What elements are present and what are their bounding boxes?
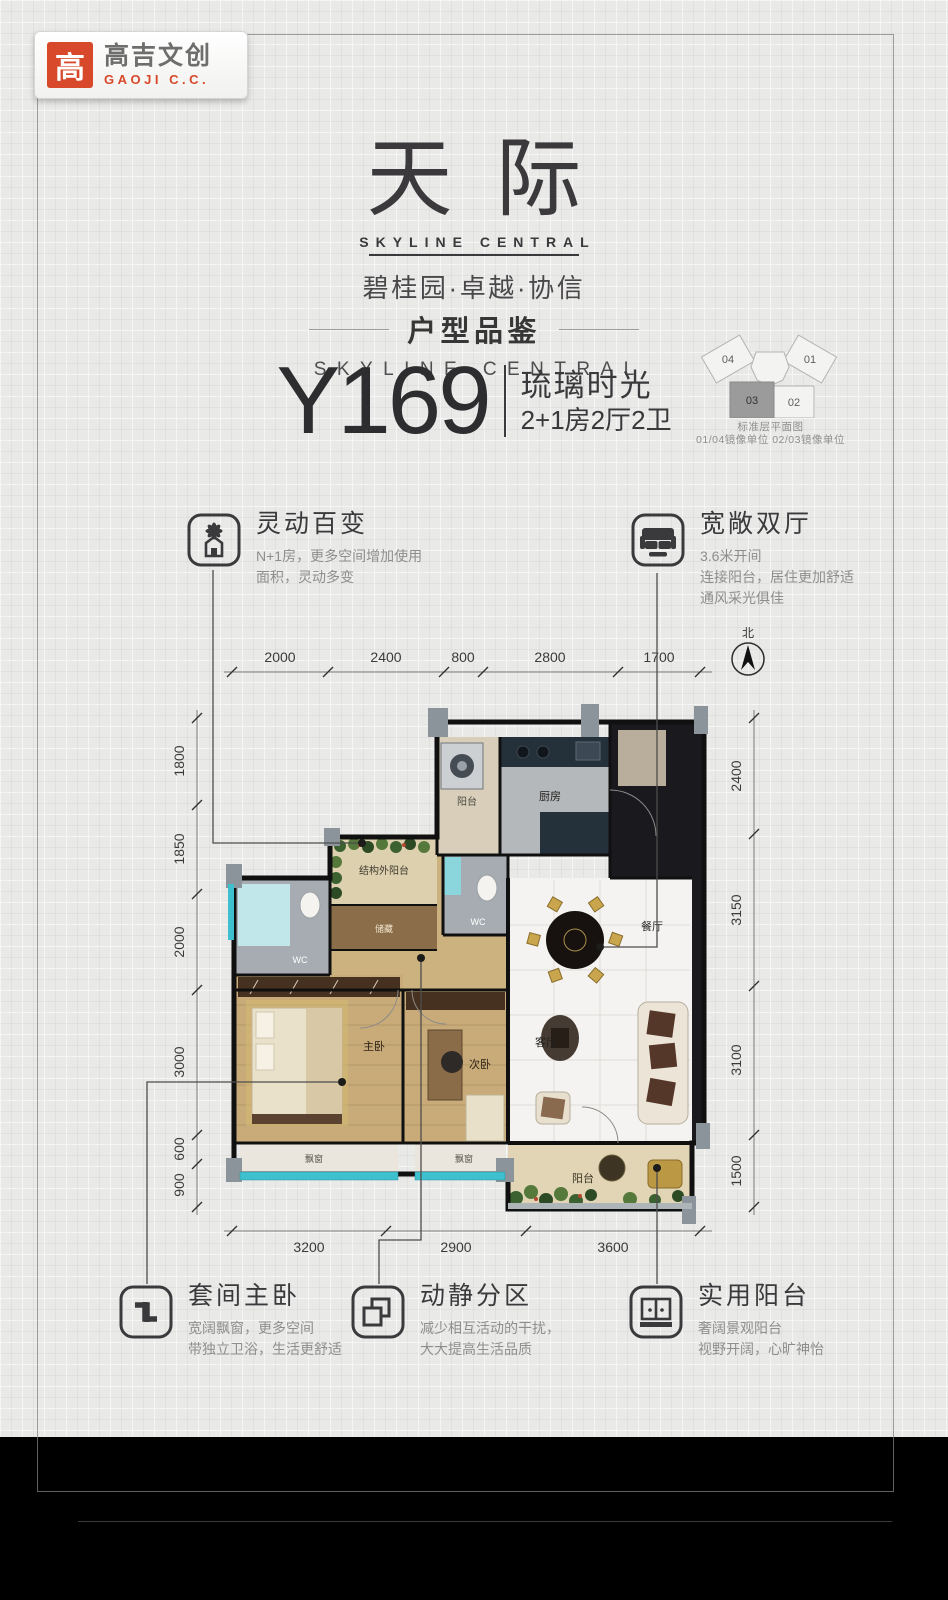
feature-desc: 奢阔景观阳台 视野开阔，心旷神怡: [698, 1318, 824, 1360]
wardrobe-master: [238, 977, 400, 997]
heading-dash-right: [559, 329, 639, 330]
keyplan-label-04: 04: [722, 354, 734, 366]
overlap-squares-icon: [350, 1284, 406, 1340]
dim-top-4: 2800: [534, 649, 565, 665]
section-heading: 户型品鉴: [407, 308, 540, 350]
stove-burner: [517, 746, 529, 758]
dim-left-4: 3000: [171, 1046, 187, 1077]
second-bed: [466, 1095, 504, 1141]
feature-zone-separation: 动静分区 减少相互活动的干扰， 大大提高生活品质: [350, 1284, 560, 1360]
dim-left-3: 2000: [171, 926, 187, 957]
heading-dash-left: [309, 329, 389, 330]
dim-bottom-1: 3200: [293, 1239, 324, 1255]
dim-right-1: 2400: [728, 760, 744, 791]
sofa-icon: [630, 512, 686, 568]
compass-needle-icon: [741, 645, 755, 670]
room-label-second-bedroom: 次卧: [469, 1057, 491, 1071]
toilet-master: [300, 892, 320, 918]
unit-code: Y169: [276, 362, 488, 441]
feature-text: 动静分区 减少相互活动的干扰， 大大提高生活品质: [420, 1284, 560, 1360]
room-label-wc-kitchen: WC: [471, 917, 486, 927]
floor-plan: 阳台 厨房 WC 餐厅 结构外阳台 储藏 WC 主卧 次卧 客厅 飘窗 飘窗 阳…: [150, 608, 800, 1270]
room-label-bay-window-master: 飘窗: [305, 1153, 323, 1164]
feature-double-hall: 宽敞双厅 3.6米开间 连接阳台，居住更加舒适 通风采光俱佳: [630, 512, 854, 609]
dim-top-2: 2400: [370, 649, 401, 665]
keyplan-core: [751, 352, 789, 386]
feature-title: 宽敞双厅: [700, 512, 854, 537]
developer-brands: 碧桂园·卓越·协信: [0, 268, 948, 305]
feature-flexible-space: 灵动百变 N+1房，更多空间增加使用 面积，灵动多变: [186, 512, 422, 588]
logo-mark-icon: 高: [47, 42, 93, 88]
room-label-kitchen: 厨房: [539, 790, 561, 803]
poster-page: 高 高吉文创 GAOJI C.C. 天际 SKYLINE CENTRAL 碧桂园…: [0, 0, 948, 1600]
room-label-wc-master: WC: [293, 955, 308, 965]
room-label-dining: 餐厅: [641, 919, 663, 933]
pinwheel-arrows-icon: [118, 1284, 174, 1340]
dim-right-3: 3100: [728, 1044, 744, 1075]
room-label-storage: 储藏: [375, 923, 393, 934]
balcony-table: [599, 1155, 625, 1181]
feature-text: 套间主卧 宽阔飘窗，更多空间 带独立卫浴，生活更舒适: [188, 1284, 342, 1360]
dim-top-1: 2000: [264, 649, 295, 665]
keyplan-label-02: 02: [788, 397, 800, 409]
logo-card: 高 高吉文创 GAOJI C.C.: [34, 31, 248, 99]
dim-bottom-3: 3600: [597, 1239, 628, 1255]
room-label-utility-balcony: 阳台: [457, 795, 477, 808]
balcony-window-icon: [628, 1284, 684, 1340]
feature-title: 套间主卧: [188, 1284, 342, 1309]
unit-text-col: 琉璃时光 2+1房2厅2卫: [521, 369, 672, 435]
feature-title: 灵动百变: [256, 512, 422, 537]
unit-name: 琉璃时光: [521, 369, 672, 403]
feature-desc: 减少相互活动的干扰， 大大提高生活品质: [420, 1318, 560, 1360]
wardrobe-second: [406, 992, 505, 1010]
keyplan-diagram: 04 01 03 02: [688, 322, 853, 418]
toilet-second: [477, 875, 497, 901]
unit-spec: 2+1房2厅2卫: [521, 406, 672, 435]
feature-title: 动静分区: [420, 1284, 560, 1309]
page-frame-accent-line: [78, 1521, 892, 1522]
logo-name: 高吉文创: [104, 44, 212, 69]
feature-desc: 宽阔飘窗，更多空间 带独立卫浴，生活更舒适: [188, 1318, 342, 1360]
dim-bottom-2: 2900: [440, 1239, 471, 1255]
project-title: 天际: [367, 136, 625, 222]
dim-top-5: 1700: [643, 649, 674, 665]
north-compass: 北: [732, 626, 764, 675]
feature-practical-balcony: 实用阳台 奢阔景观阳台 视野开阔，心旷神怡: [628, 1284, 824, 1360]
balcony-chair: [648, 1160, 682, 1188]
logo-text-block: 高吉文创 GAOJI C.C.: [104, 44, 212, 87]
dim-right-2: 3150: [728, 894, 744, 925]
feature-title: 实用阳台: [698, 1284, 824, 1309]
kitchen-sink: [576, 742, 600, 760]
dim-left-1: 1800: [171, 745, 187, 776]
feature-desc: N+1房，更多空间增加使用 面积，灵动多变: [256, 546, 422, 588]
feature-desc: 3.6米开间 连接阳台，居住更加舒适 通风采光俱佳: [700, 546, 854, 609]
hero-block: 天际 SKYLINE CENTRAL 碧桂园·卓越·协信: [0, 136, 948, 305]
room-label-master-bedroom: 主卧: [363, 1040, 385, 1053]
dim-left-6: 900: [171, 1173, 187, 1197]
room-label-outer-balcony: 结构外阳台: [359, 864, 409, 877]
feature-text: 灵动百变 N+1房，更多空间增加使用 面积，灵动多变: [256, 512, 422, 588]
project-title-en: SKYLINE CENTRAL: [0, 234, 948, 250]
room-label-balcony: 阳台: [572, 1171, 594, 1185]
dining-table: [546, 911, 604, 969]
keyplan-label-01: 01: [804, 354, 816, 366]
room-label-living: 客厅: [535, 1035, 557, 1049]
dim-top-3: 800: [451, 649, 475, 665]
keyplan-caption-2: 01/04镜像单位 02/03镜像单位: [663, 432, 878, 447]
compass-label: 北: [742, 626, 754, 640]
title-underline: [369, 254, 579, 256]
dim-left-2: 1850: [171, 833, 187, 864]
logo-subtitle: GAOJI C.C.: [104, 72, 212, 87]
unit-divider: [504, 365, 506, 437]
feature-text: 宽敞双厅 3.6米开间 连接阳台，居住更加舒适 通风采光俱佳: [700, 512, 854, 609]
keyplan-label-03: 03: [746, 395, 758, 407]
flower-house-icon: [186, 512, 242, 568]
feature-text: 实用阳台 奢阔景观阳台 视野开阔，心旷神怡: [698, 1284, 824, 1360]
dim-right-4: 1500: [728, 1155, 744, 1186]
dim-left-5: 600: [171, 1137, 187, 1161]
feature-suite-master: 套间主卧 宽阔飘窗，更多空间 带独立卫浴，生活更舒适: [118, 1284, 342, 1360]
room-label-bay-window-second: 飘窗: [455, 1153, 473, 1164]
